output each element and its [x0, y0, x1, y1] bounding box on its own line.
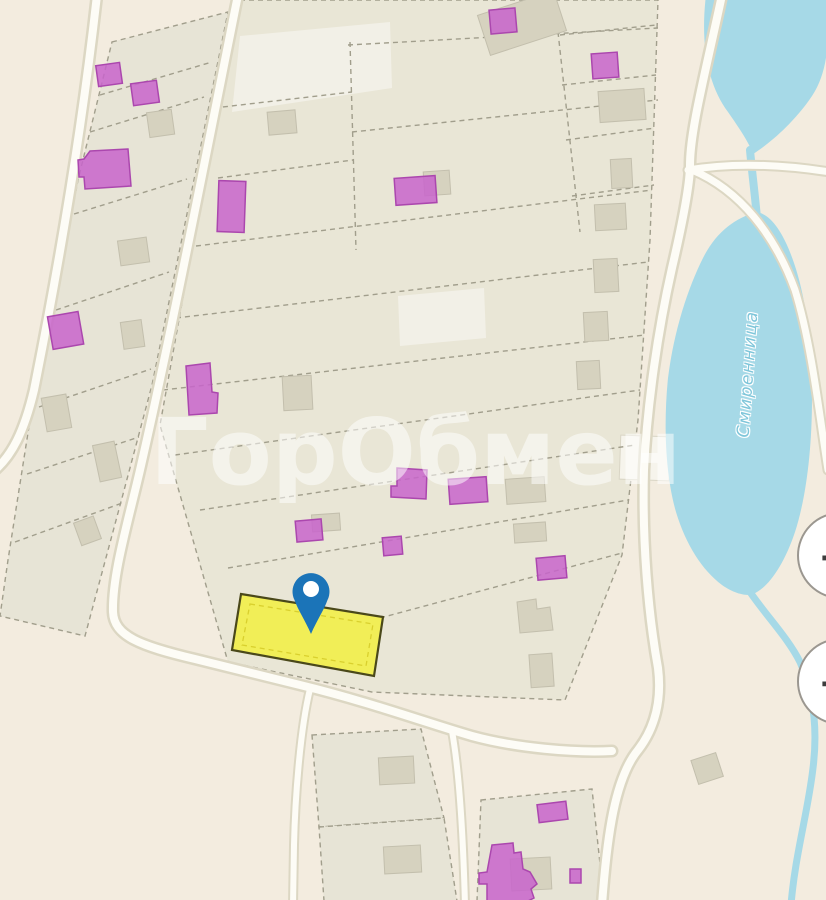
building — [691, 753, 723, 785]
parcel — [398, 288, 486, 346]
building — [391, 468, 427, 499]
map-view[interactable]: ГорОбмен Смиренница + − — [0, 0, 826, 900]
building — [448, 477, 488, 505]
building — [295, 519, 323, 542]
building — [576, 360, 600, 389]
building — [41, 394, 72, 432]
building — [529, 653, 554, 688]
building — [383, 845, 421, 874]
building — [282, 375, 313, 410]
building — [267, 110, 297, 135]
building — [120, 320, 145, 350]
map-canvas[interactable] — [0, 0, 826, 900]
building — [382, 536, 402, 556]
building — [593, 258, 619, 292]
building — [610, 158, 632, 188]
building — [47, 311, 83, 349]
pin-hole — [303, 581, 319, 597]
building — [583, 311, 608, 341]
building — [131, 80, 160, 105]
building — [591, 52, 619, 79]
building — [598, 88, 646, 122]
building — [489, 8, 517, 34]
minus-icon: − — [816, 653, 826, 711]
building — [513, 522, 546, 543]
building — [394, 176, 437, 206]
building — [378, 756, 414, 785]
parcel — [312, 729, 444, 827]
building — [146, 109, 174, 137]
stream-south — [750, 592, 815, 900]
building — [570, 869, 581, 883]
building — [96, 62, 123, 86]
building — [537, 801, 568, 822]
building — [536, 556, 567, 580]
building — [117, 237, 149, 266]
building — [505, 477, 546, 505]
building — [594, 203, 626, 231]
plus-icon: + — [816, 527, 826, 585]
building — [217, 181, 246, 233]
